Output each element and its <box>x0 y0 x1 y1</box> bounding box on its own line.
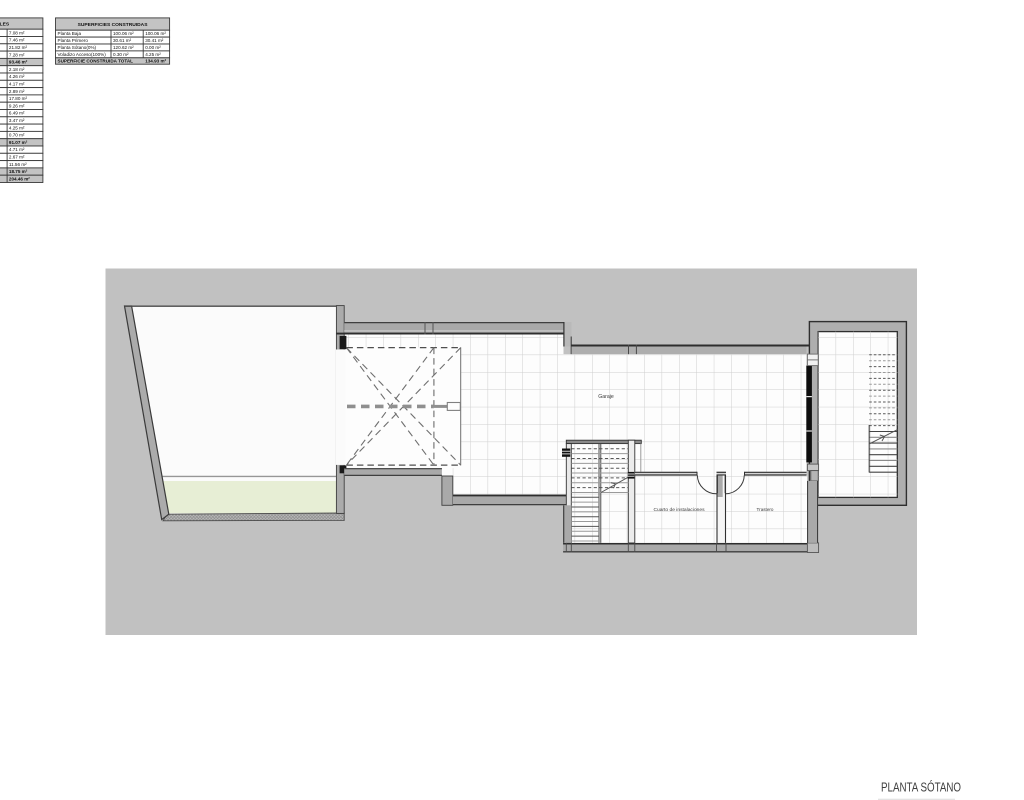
svg-text:93.46 m²: 93.46 m² <box>9 60 28 65</box>
svg-text:30.61 m²: 30.61 m² <box>113 38 132 43</box>
svg-text:120.62 m²: 120.62 m² <box>113 45 134 50</box>
svg-text:9.26 m²: 9.26 m² <box>9 103 25 108</box>
svg-text:4.25 m²: 4.25 m² <box>9 125 25 130</box>
svg-text:4.26 m²: 4.26 m² <box>9 74 25 79</box>
svg-text:SUPERFICIES ÚTILES: SUPERFICIES ÚTILES <box>0 21 10 28</box>
svg-text:17.80 m²: 17.80 m² <box>9 96 28 101</box>
svg-text:2.89 m²: 2.89 m² <box>9 89 25 94</box>
svg-text:18.75 m²: 18.75 m² <box>9 169 28 174</box>
svg-text:4.17 m²: 4.17 m² <box>9 82 25 87</box>
svg-text:2.67 m²: 2.67 m² <box>9 155 25 160</box>
svg-text:6.49 m²: 6.49 m² <box>9 111 25 116</box>
svg-text:134.93 m²: 134.93 m² <box>145 59 166 64</box>
svg-text:SUPERFICIES CONSTRUIDAS: SUPERFICIES CONSTRUIDAS <box>78 22 149 28</box>
svg-text:0.70 m²: 0.70 m² <box>9 133 25 138</box>
svg-text:100.06 m²: 100.06 m² <box>145 31 166 36</box>
svg-text:7.46 m²: 7.46 m² <box>9 38 25 43</box>
svg-text:0.00 m²: 0.00 m² <box>145 45 161 50</box>
svg-text:Planta Primero: Planta Primero <box>58 38 89 43</box>
svg-text:3.47 m²: 3.47 m² <box>9 118 25 123</box>
svg-text:11.56 m²: 11.56 m² <box>9 162 27 167</box>
svg-text:4.25 m²: 4.25 m² <box>145 52 161 57</box>
svg-text:204.46 m²: 204.46 m² <box>9 176 30 181</box>
svg-text:4.71 m²: 4.71 m² <box>9 147 25 152</box>
svg-text:7.28 m²: 7.28 m² <box>9 52 25 57</box>
svg-text:Trastero: Trastero <box>757 507 774 512</box>
svg-text:2.18 m²: 2.18 m² <box>9 67 25 72</box>
svg-text:Cuarto de instalaciones: Cuarto de instalaciones <box>653 507 705 513</box>
svg-text:30.41 m²: 30.41 m² <box>145 38 164 43</box>
svg-text:Garaje: Garaje <box>598 394 614 400</box>
svg-text:Planta Sótano(0%): Planta Sótano(0%) <box>58 45 97 50</box>
svg-text:100.06 m²: 100.06 m² <box>113 31 134 36</box>
svg-text:PLANTA SÓTANO: PLANTA SÓTANO <box>881 779 961 794</box>
svg-text:91.07 m²: 91.07 m² <box>9 140 28 145</box>
svg-text:21.82 m²: 21.82 m² <box>9 45 28 50</box>
svg-text:Planta Baja: Planta Baja <box>58 31 82 36</box>
svg-text:SUPERFICIE CONSTRUIDA TOTAL: SUPERFICIE CONSTRUIDA TOTAL <box>58 59 134 64</box>
svg-text:0.30 m²: 0.30 m² <box>113 52 129 57</box>
svg-text:7.08 m²: 7.08 m² <box>9 30 25 35</box>
svg-text:Voladizo Acceso(100%): Voladizo Acceso(100%) <box>58 52 107 57</box>
